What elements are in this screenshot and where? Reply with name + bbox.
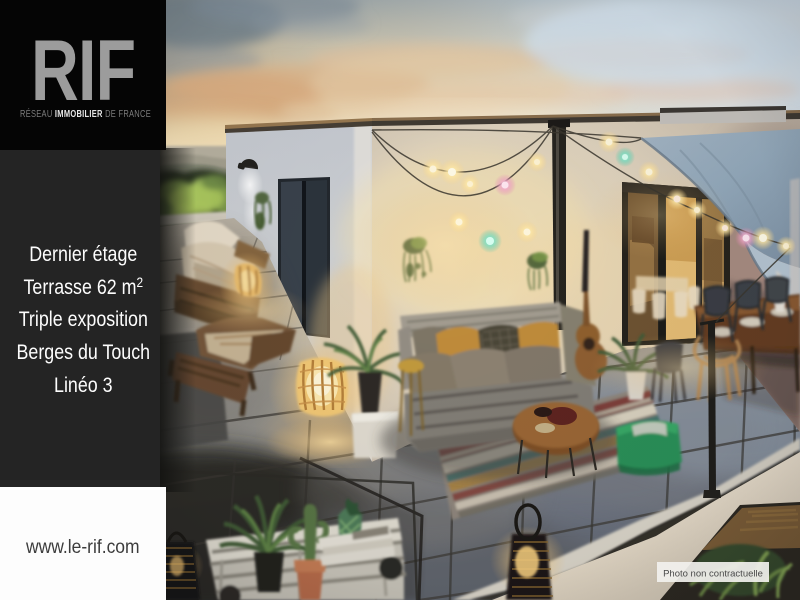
svg-text:Photo non contractuelle: Photo non contractuelle	[663, 569, 763, 580]
svg-text:Linéo 3: Linéo 3	[54, 374, 113, 398]
svg-text:Triple exposition: Triple exposition	[19, 308, 148, 332]
svg-text:Terrasse 62 m2: Terrasse 62 m2	[24, 274, 144, 299]
svg-text:www.le-rif.com: www.le-rif.com	[25, 535, 140, 557]
svg-text:Berges du Touch: Berges du Touch	[17, 341, 151, 365]
svg-text:Dernier étage: Dernier étage	[29, 243, 137, 267]
svg-text:RIF: RIF	[31, 24, 135, 119]
svg-text:RÉSEAU IMMOBILIER DE FRANCE: RÉSEAU IMMOBILIER DE FRANCE	[20, 108, 151, 120]
